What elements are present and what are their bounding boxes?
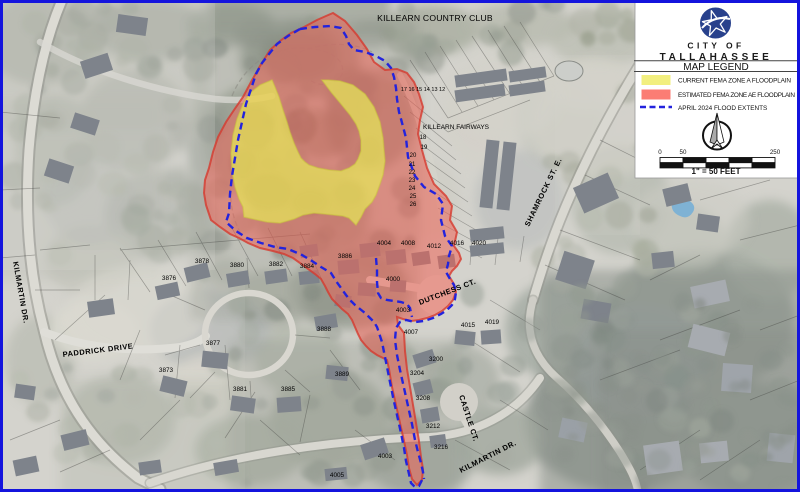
svg-text:3212: 3212 (426, 423, 441, 430)
svg-text:3880: 3880 (230, 262, 245, 269)
svg-text:4003: 4003 (396, 307, 411, 314)
svg-text:50: 50 (680, 149, 687, 156)
svg-text:26: 26 (410, 202, 417, 208)
svg-text:1" = 50 FEET: 1" = 50 FEET (692, 167, 741, 176)
svg-text:4003: 4003 (378, 453, 393, 460)
svg-text:ESTIMATED FEMA ZONE AE FLOODPL: ESTIMATED FEMA ZONE AE FLOODPLAIN (678, 92, 795, 99)
svg-text:3884: 3884 (300, 263, 315, 270)
svg-text:4016: 4016 (450, 240, 465, 247)
svg-text:3873: 3873 (159, 367, 174, 374)
svg-text:3876: 3876 (162, 275, 177, 282)
svg-text:3882: 3882 (269, 261, 284, 268)
svg-text:17 16 15 14 13 12: 17 16 15 14 13 12 (401, 87, 445, 93)
svg-text:4020: 4020 (472, 240, 487, 247)
svg-text:4019: 4019 (485, 319, 500, 326)
svg-text:3888: 3888 (317, 326, 332, 333)
svg-text:20: 20 (410, 153, 417, 159)
svg-text:3200: 3200 (429, 356, 444, 363)
svg-text:4000: 4000 (386, 276, 401, 283)
svg-text:3878: 3878 (195, 258, 210, 265)
svg-text:KILLEARN COUNTRY CLUB: KILLEARN COUNTRY CLUB (377, 13, 493, 23)
svg-text:0: 0 (658, 149, 662, 156)
svg-text:KILLEARN FAIRWAYS: KILLEARN FAIRWAYS (423, 124, 490, 131)
svg-text:24: 24 (409, 186, 416, 192)
svg-text:4008: 4008 (401, 240, 416, 247)
svg-text:CITY OF: CITY OF (687, 41, 744, 51)
svg-text:4007: 4007 (404, 329, 419, 336)
svg-text:4012: 4012 (427, 243, 442, 250)
svg-text:18: 18 (420, 135, 427, 141)
svg-text:3885: 3885 (281, 386, 296, 393)
svg-text:22: 22 (409, 170, 416, 176)
svg-text:21: 21 (409, 162, 416, 168)
svg-text:CURRENT FEMA ZONE A FLOODPLAIN: CURRENT FEMA ZONE A FLOODPLAIN (678, 78, 791, 85)
svg-text:23: 23 (409, 178, 416, 184)
svg-text:3881: 3881 (233, 386, 248, 393)
svg-text:3886: 3886 (338, 253, 353, 260)
svg-text:4004: 4004 (377, 240, 392, 247)
svg-text:4005: 4005 (330, 472, 345, 479)
svg-text:APRIL 2024 FLOOD EXTENTS: APRIL 2024 FLOOD EXTENTS (678, 105, 767, 112)
svg-text:250: 250 (770, 149, 781, 156)
svg-text:3216: 3216 (434, 444, 449, 451)
svg-text:3208: 3208 (416, 395, 431, 402)
svg-text:19: 19 (421, 145, 428, 151)
svg-text:3889: 3889 (335, 371, 350, 378)
svg-text:25: 25 (410, 194, 417, 200)
svg-text:4015: 4015 (461, 322, 476, 329)
svg-text:3877: 3877 (206, 340, 221, 347)
svg-text:3204: 3204 (410, 370, 425, 377)
